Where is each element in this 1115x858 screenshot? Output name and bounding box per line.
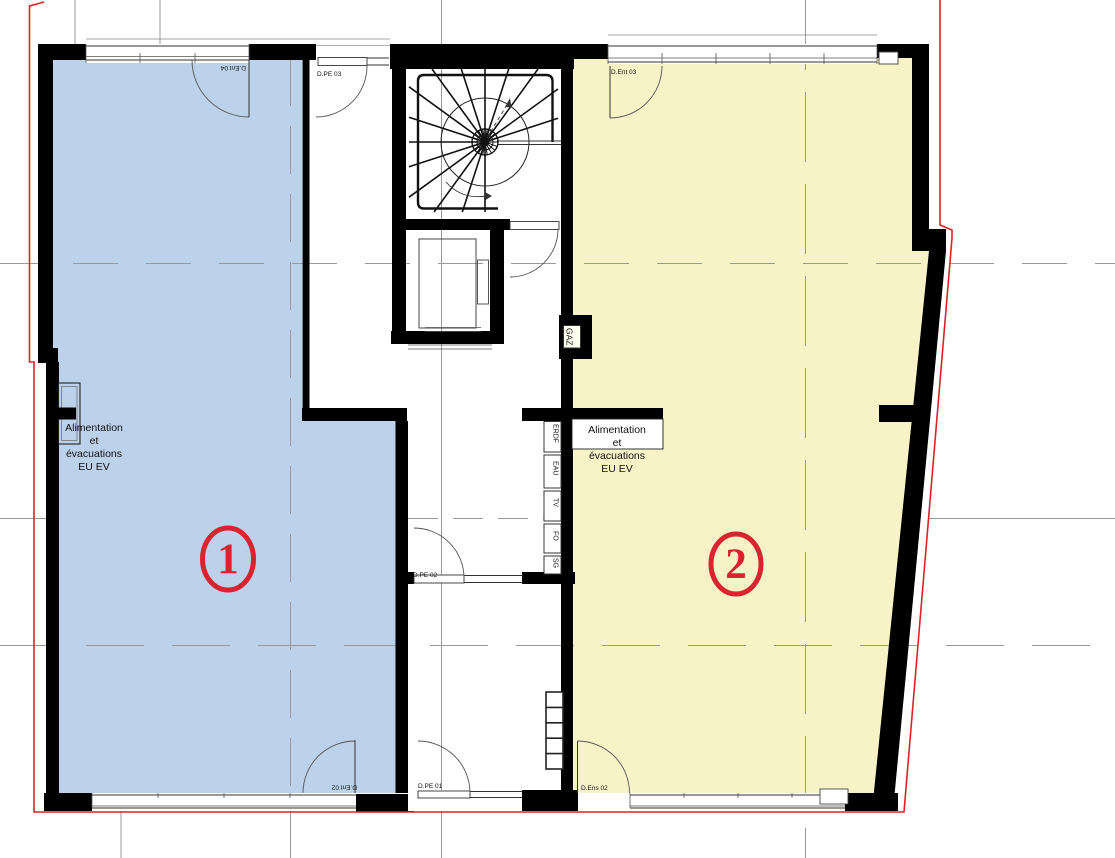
svg-text:et: et	[613, 437, 622, 449]
svg-text:EU EV: EU EV	[601, 463, 633, 475]
svg-text:FO: FO	[552, 531, 559, 541]
svg-text:SG: SG	[552, 558, 559, 568]
svg-text:évacuations: évacuations	[66, 448, 122, 460]
svg-text:Alimentation: Alimentation	[65, 422, 123, 434]
svg-text:TV: TV	[552, 498, 559, 507]
svg-text:2: 2	[725, 541, 747, 588]
svg-text:Alimentation: Alimentation	[588, 424, 646, 436]
svg-text:D.Ent 03: D.Ent 03	[611, 69, 637, 76]
svg-text:D.PE 03: D.PE 03	[317, 71, 342, 78]
svg-text:D.PE 01: D.PE 01	[418, 783, 443, 790]
svg-text:1: 1	[217, 536, 239, 583]
svg-text:D.Ent 04: D.Ent 04	[220, 64, 246, 71]
svg-text:ERDF: ERDF	[552, 424, 559, 443]
svg-text:D.Ent 02: D.Ent 02	[331, 784, 357, 791]
svg-text:D.Ens 02: D.Ens 02	[581, 785, 608, 792]
svg-text:D.PE 02: D.PE 02	[413, 572, 438, 579]
svg-text:et: et	[90, 435, 99, 447]
svg-text:GAZ: GAZ	[565, 328, 575, 345]
svg-text:évacuations: évacuations	[589, 450, 645, 462]
svg-text:EAU: EAU	[552, 461, 559, 475]
svg-text:EU EV: EU EV	[78, 461, 110, 473]
